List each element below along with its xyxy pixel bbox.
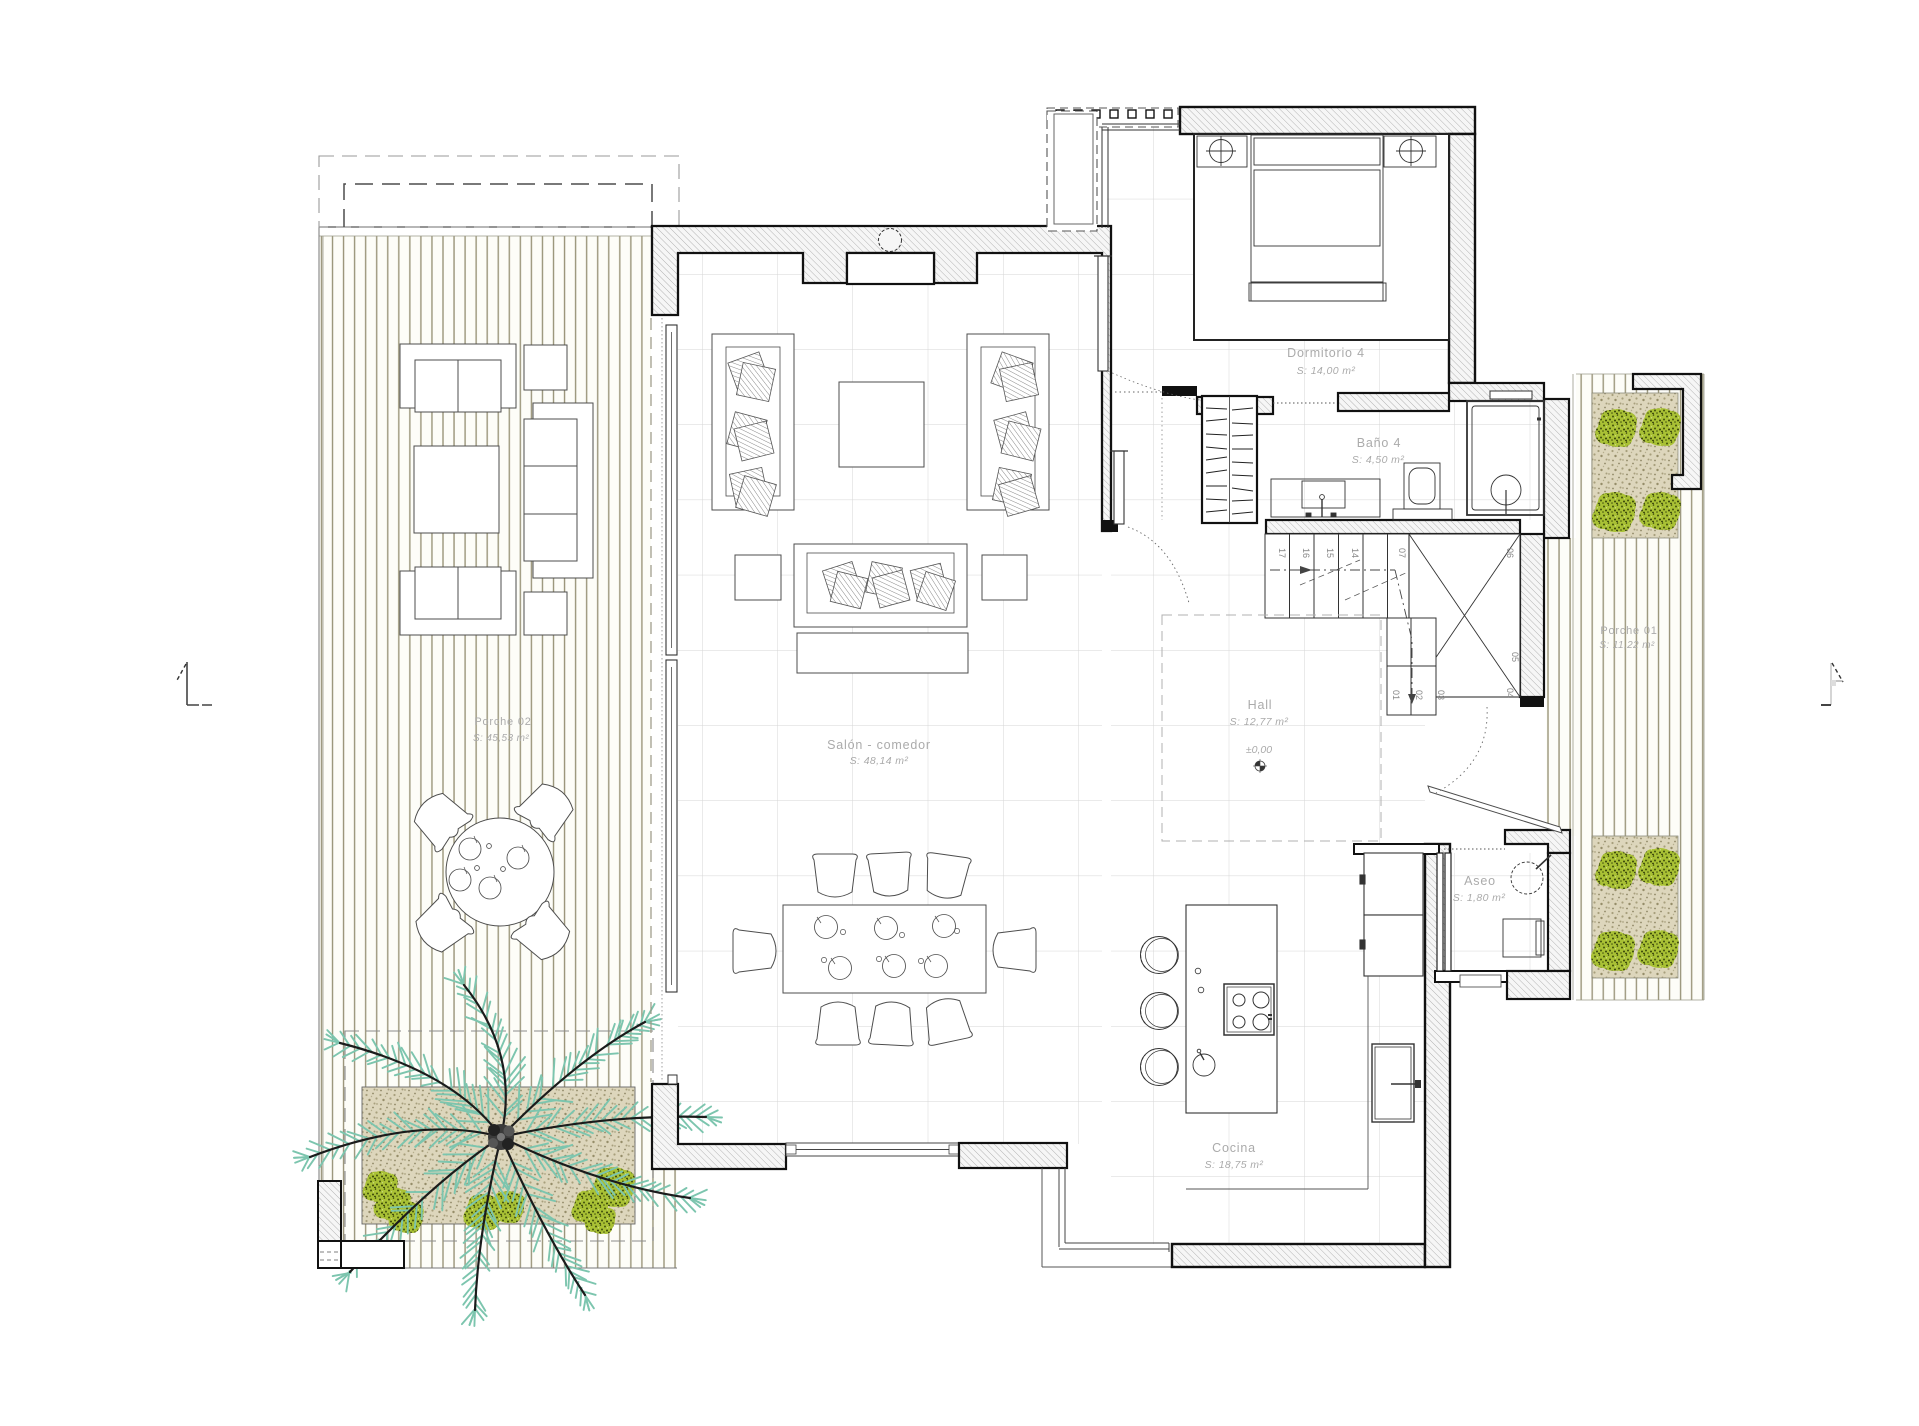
svg-text:S: 48,14 m²: S: 48,14 m²: [850, 755, 909, 767]
svg-text:03: 03: [1436, 690, 1446, 700]
svg-text:S: 18,75 m²: S: 18,75 m²: [1205, 1159, 1264, 1171]
svg-text:Hall: Hall: [1248, 698, 1273, 712]
svg-text:06: 06: [1505, 548, 1515, 558]
svg-text:±0,00: ±0,00: [1246, 744, 1272, 756]
svg-text:Porche 01: Porche 01: [1600, 625, 1657, 637]
svg-text:Salón - comedor: Salón - comedor: [827, 738, 931, 752]
svg-text:S: 12,77 m²: S: 12,77 m²: [1230, 716, 1289, 728]
svg-text:14: 14: [1350, 548, 1360, 558]
svg-text:S: 11,22 m²: S: 11,22 m²: [1599, 640, 1655, 651]
svg-text:02: 02: [1414, 690, 1424, 700]
svg-text:Porche 02: Porche 02: [474, 716, 531, 728]
svg-text:17: 17: [1277, 548, 1287, 558]
svg-text:15: 15: [1325, 548, 1335, 558]
svg-text:S: 14,00 m²: S: 14,00 m²: [1297, 365, 1356, 377]
svg-text:05: 05: [1510, 652, 1520, 662]
svg-text:S: 1,80 m²: S: 1,80 m²: [1453, 892, 1506, 904]
svg-text:S: 45,53 m²: S: 45,53 m²: [473, 733, 529, 744]
svg-text:16: 16: [1301, 548, 1311, 558]
svg-text:Aseo: Aseo: [1464, 874, 1496, 888]
svg-text:S: 4,50 m²: S: 4,50 m²: [1352, 454, 1405, 466]
svg-text:04: 04: [1505, 688, 1515, 698]
svg-text:01: 01: [1391, 690, 1401, 700]
svg-text:Dormitorio 4: Dormitorio 4: [1287, 346, 1365, 360]
svg-text:07: 07: [1397, 548, 1407, 558]
svg-text:Cocina: Cocina: [1212, 1141, 1256, 1155]
svg-text:Baño 4: Baño 4: [1357, 436, 1401, 450]
